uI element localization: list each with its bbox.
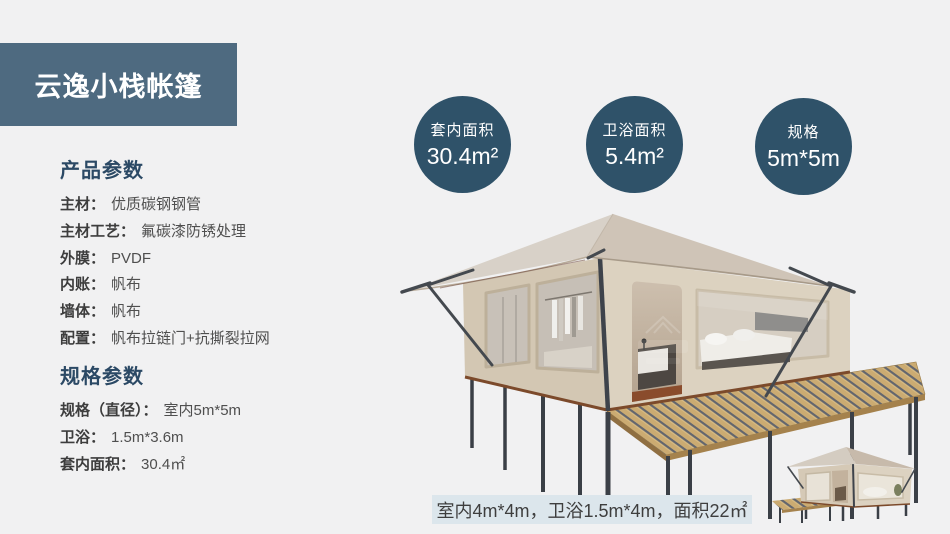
param-value: 室内5m*5m: [164, 403, 242, 419]
main-tent-illustration: [385, 200, 945, 534]
param-label: 规格（直径）：: [60, 403, 158, 419]
param-label: 配置：: [60, 331, 105, 347]
stat-circle-bathroom-area: 卫浴面积 5.4m²: [586, 96, 683, 193]
param-value: 帆布: [111, 277, 141, 293]
stat-circle-indoor-area: 套内面积 30.4m²: [414, 96, 511, 193]
param-label: 卫浴：: [60, 430, 105, 446]
param-value: 氟碳漆防锈处理: [141, 224, 246, 240]
param-row-material: 主材： 优质碳钢钢管: [60, 197, 400, 213]
param-row-outer-membrane: 外膜： PVDF: [60, 251, 400, 267]
param-value: 1.5m*3.6m: [111, 430, 184, 446]
spec-row-size: 规格（直径）： 室内5m*5m: [60, 403, 400, 419]
section-header-product: 产品参数: [60, 161, 400, 181]
left-window-1: [486, 285, 529, 367]
param-value: 优质碳钢钢管: [111, 197, 201, 213]
right-window: [697, 290, 828, 370]
param-value: 帆布拉链门+抗撕裂拉网: [111, 331, 270, 347]
param-value: 帆布: [111, 304, 141, 320]
param-value: PVDF: [111, 251, 151, 267]
title-banner: 云逸小栈帐篷: [0, 43, 237, 126]
param-row-inner-tent: 内账： 帆布: [60, 277, 400, 293]
stat-label: 规格: [787, 121, 819, 142]
stat-circle-size: 规格 5m*5m: [755, 98, 852, 195]
stat-label: 套内面积: [430, 119, 494, 140]
param-row-material-process: 主材工艺： 氟碳漆防锈处理: [60, 224, 400, 240]
param-row-configuration: 配置： 帆布拉链门+抗撕裂拉网: [60, 331, 400, 347]
param-label: 主材：: [60, 197, 105, 213]
section-header-spec: 规格参数: [60, 367, 400, 387]
param-label: 内账：: [60, 277, 105, 293]
param-label: 墙体：: [60, 304, 105, 320]
spec-row-indoor-area: 套内面积： 30.4㎡: [60, 457, 400, 473]
param-value: 30.4㎡: [141, 457, 185, 473]
param-label: 主材工艺：: [60, 224, 135, 240]
stat-label: 卫浴面积: [602, 119, 666, 140]
parameters-panel: 产品参数 主材： 优质碳钢钢管 主材工艺： 氟碳漆防锈处理 外膜： PVDF 内…: [60, 161, 400, 483]
caption-text: 室内4m*4m，卫浴1.5m*4m，面积22㎡: [436, 497, 747, 523]
stat-value: 30.4m²: [427, 143, 499, 170]
small-tent-illustration: [772, 447, 916, 523]
stat-value: 5.4m²: [605, 143, 664, 170]
tent-left-wall: [463, 258, 607, 410]
page-title: 云逸小栈帐篷: [35, 65, 203, 104]
spec-row-bathroom: 卫浴： 1.5m*3.6m: [60, 430, 400, 446]
dimensions-caption: 室内4m*4m，卫浴1.5m*4m，面积22㎡: [432, 495, 752, 524]
param-row-wall: 墙体： 帆布: [60, 304, 400, 320]
param-label: 外膜：: [60, 251, 105, 267]
stat-value: 5m*5m: [767, 145, 840, 172]
param-label: 套内面积：: [60, 457, 135, 473]
